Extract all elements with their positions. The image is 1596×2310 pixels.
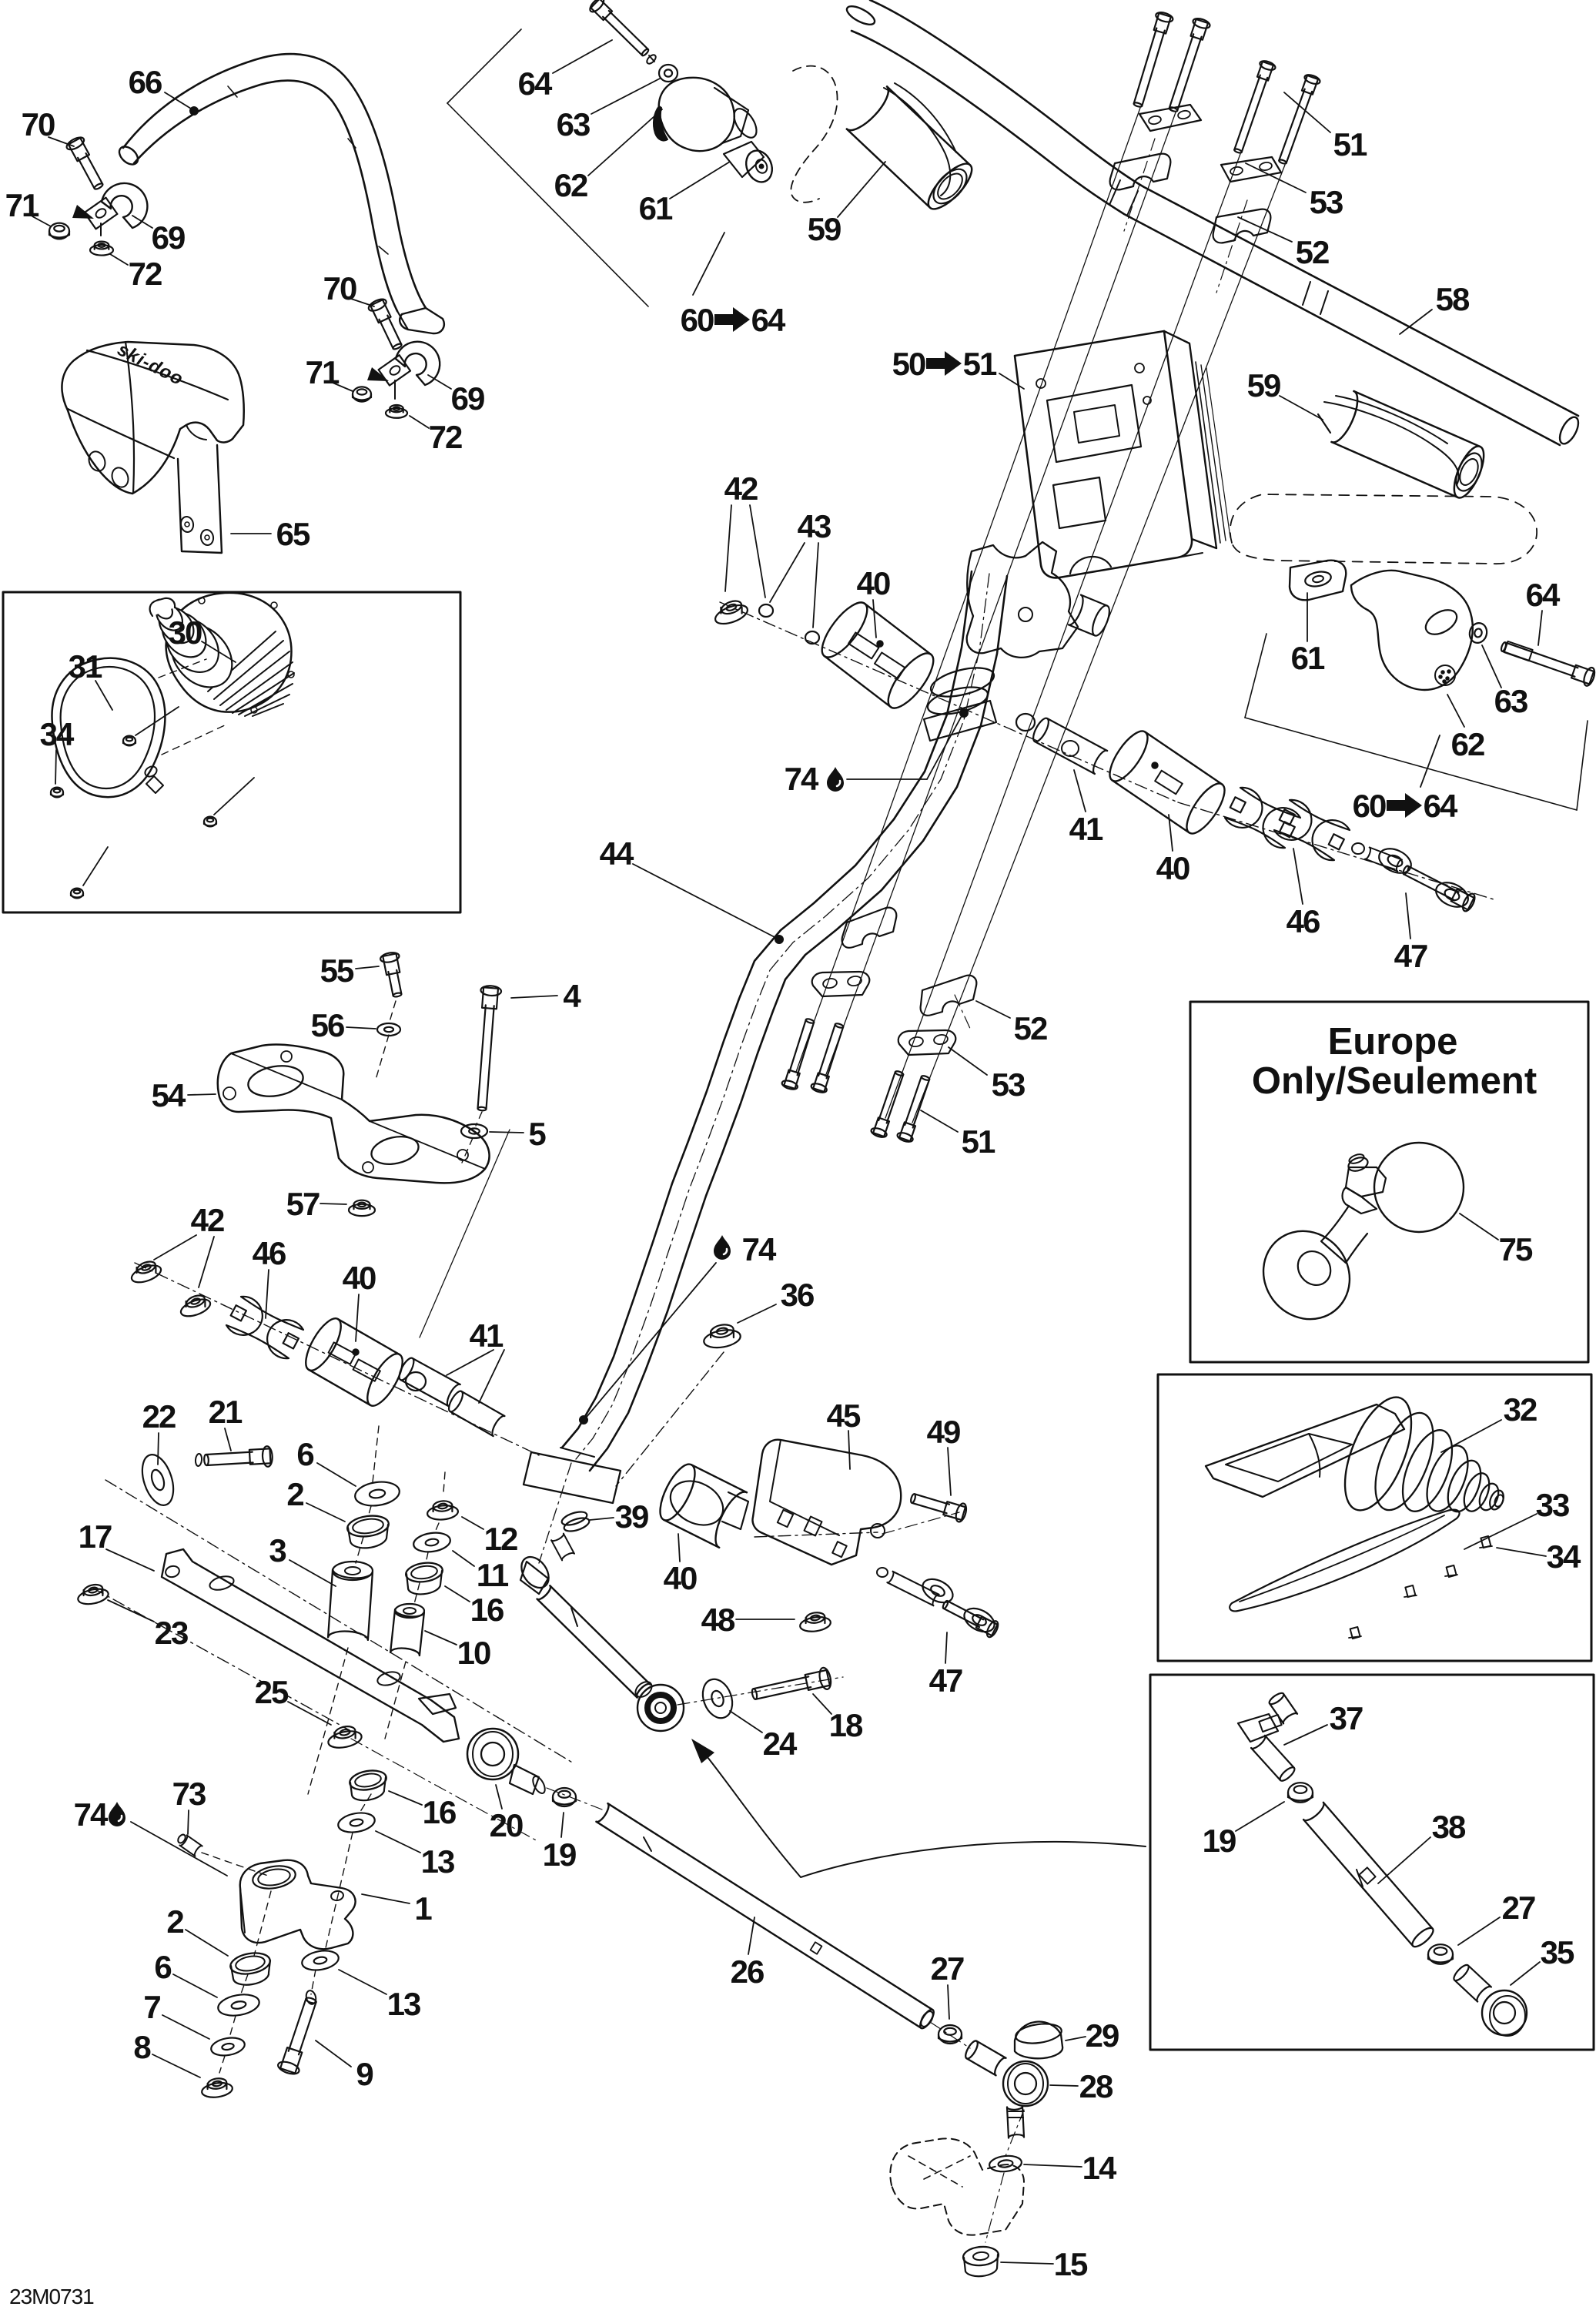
svg-text:23: 23 [155,1615,188,1651]
svg-text:44: 44 [600,835,634,872]
svg-text:8: 8 [133,2029,151,2065]
svg-text:45: 45 [827,1398,861,1434]
svg-text:57: 57 [286,1186,320,1222]
svg-text:62: 62 [1451,726,1484,762]
svg-text:34: 34 [40,716,75,752]
svg-text:6: 6 [154,1949,171,1985]
svg-text:64: 64 [1424,788,1458,824]
svg-text:43: 43 [798,508,831,544]
svg-text:52: 52 [1296,234,1329,270]
svg-text:12: 12 [484,1521,517,1557]
svg-text:5: 5 [528,1116,546,1152]
svg-text:74: 74 [785,761,819,797]
svg-text:Only/Seulement: Only/Seulement [1252,1060,1537,1102]
svg-text:60: 60 [681,302,714,338]
svg-text:27: 27 [1502,1890,1535,1926]
svg-text:55: 55 [320,952,354,989]
svg-text:27: 27 [931,1950,964,1987]
svg-text:42: 42 [724,470,758,507]
svg-text:63: 63 [557,106,590,142]
svg-text:14: 14 [1082,2150,1117,2186]
svg-text:53: 53 [992,1066,1025,1103]
svg-text:28: 28 [1079,2068,1113,2104]
svg-text:2: 2 [286,1476,303,1512]
svg-text:39: 39 [615,1498,648,1535]
svg-text:16: 16 [423,1794,456,1830]
svg-text:2: 2 [166,1903,183,1940]
svg-text:36: 36 [781,1277,814,1313]
svg-text:75: 75 [1499,1231,1533,1267]
svg-text:40: 40 [1156,850,1189,886]
svg-text:72: 72 [129,256,162,292]
svg-text:51: 51 [1333,126,1367,162]
svg-text:64: 64 [1526,577,1561,613]
svg-text:47: 47 [929,1662,962,1699]
svg-text:4: 4 [563,978,581,1014]
svg-text:41: 41 [1069,811,1103,847]
svg-text:13: 13 [421,1843,454,1880]
svg-text:61: 61 [639,190,673,226]
svg-text:6: 6 [296,1436,313,1472]
svg-text:74: 74 [74,1796,109,1833]
svg-text:50: 50 [892,346,925,382]
svg-text:51: 51 [962,1123,995,1160]
svg-text:Europe: Europe [1328,1021,1458,1063]
svg-text:48: 48 [701,1602,735,1638]
svg-text:52: 52 [1014,1010,1047,1046]
svg-text:3: 3 [269,1532,286,1568]
svg-text:53: 53 [1310,184,1343,220]
svg-text:64: 64 [518,65,553,102]
svg-text:29: 29 [1086,2017,1119,2054]
svg-text:62: 62 [554,167,587,203]
svg-text:47: 47 [1394,938,1427,974]
svg-text:31: 31 [69,648,102,685]
svg-text:20: 20 [490,1807,523,1843]
svg-text:69: 69 [451,380,484,417]
svg-text:65: 65 [276,516,310,552]
svg-text:70: 70 [323,270,356,306]
svg-text:64: 64 [751,302,786,338]
svg-text:35: 35 [1541,1934,1574,1970]
svg-text:32: 32 [1504,1391,1537,1428]
svg-text:38: 38 [1432,1809,1466,1845]
svg-text:26: 26 [731,1953,764,1990]
svg-text:19: 19 [543,1836,576,1873]
svg-text:49: 49 [927,1414,960,1450]
svg-text:40: 40 [664,1560,697,1596]
svg-text:58: 58 [1436,281,1470,317]
svg-text:74: 74 [742,1231,777,1267]
svg-text:33: 33 [1536,1487,1569,1523]
svg-text:60: 60 [1353,788,1386,824]
svg-text:11: 11 [477,1557,509,1593]
svg-text:54: 54 [152,1077,186,1113]
svg-text:51: 51 [963,346,997,382]
svg-text:1: 1 [414,1890,432,1927]
svg-text:61: 61 [1291,640,1325,676]
svg-text:73: 73 [172,1776,206,1812]
svg-text:30: 30 [169,614,202,651]
svg-text:9: 9 [356,2056,373,2092]
svg-text:13: 13 [387,1986,420,2022]
svg-text:15: 15 [1054,2246,1088,2282]
svg-text:16: 16 [470,1592,504,1628]
svg-text:22: 22 [142,1398,176,1435]
svg-text:46: 46 [253,1235,286,1271]
svg-text:25: 25 [255,1674,289,1710]
svg-text:18: 18 [829,1707,863,1743]
svg-text:63: 63 [1494,683,1527,719]
svg-text:59: 59 [1247,367,1280,403]
svg-text:46: 46 [1287,903,1320,939]
svg-text:19: 19 [1203,1823,1236,1859]
svg-text:69: 69 [152,219,185,256]
svg-text:71: 71 [306,354,340,390]
svg-text:59: 59 [808,211,841,247]
svg-text:34: 34 [1547,1538,1581,1575]
svg-text:23M0731: 23M0731 [9,2285,94,2308]
svg-text:41: 41 [470,1317,504,1354]
svg-text:7: 7 [143,1989,160,2025]
svg-text:40: 40 [857,565,890,601]
svg-text:72: 72 [429,419,462,455]
svg-text:37: 37 [1330,1700,1363,1736]
svg-text:10: 10 [457,1635,490,1671]
svg-text:21: 21 [209,1394,243,1430]
svg-text:24: 24 [763,1726,798,1762]
svg-text:56: 56 [311,1007,344,1043]
svg-text:40: 40 [343,1260,376,1296]
svg-text:42: 42 [191,1202,224,1238]
svg-text:66: 66 [129,64,162,100]
